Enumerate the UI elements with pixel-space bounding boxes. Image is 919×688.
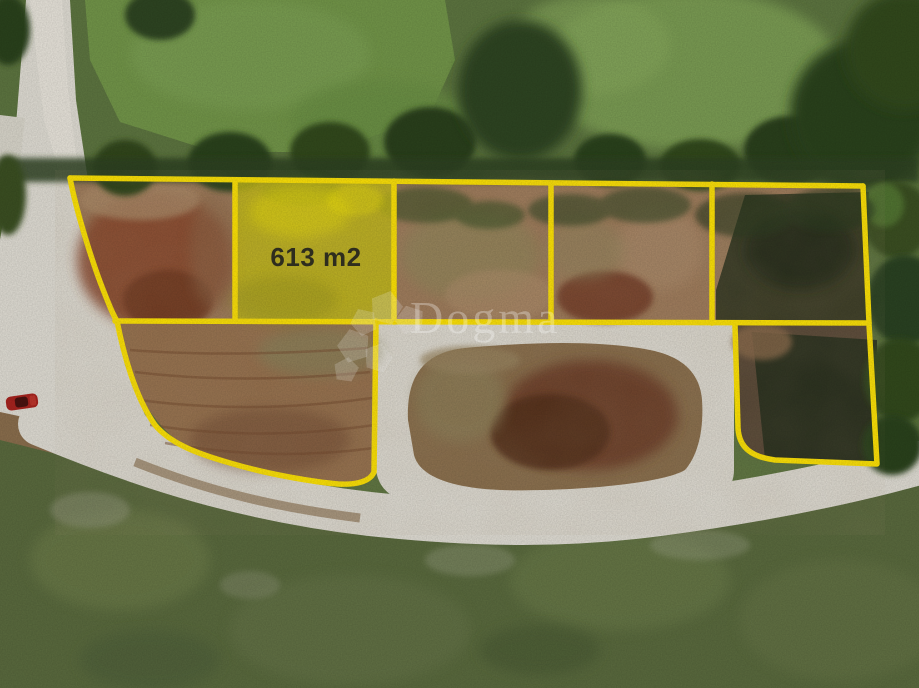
watermark-text: Dogma xyxy=(410,291,560,344)
parcel-area-label: 613 m2 xyxy=(248,240,384,274)
photo-grain xyxy=(0,0,919,688)
aerial-photo: 613 m2 Dogma xyxy=(0,0,919,688)
aerial-photo-canvas xyxy=(0,0,919,688)
